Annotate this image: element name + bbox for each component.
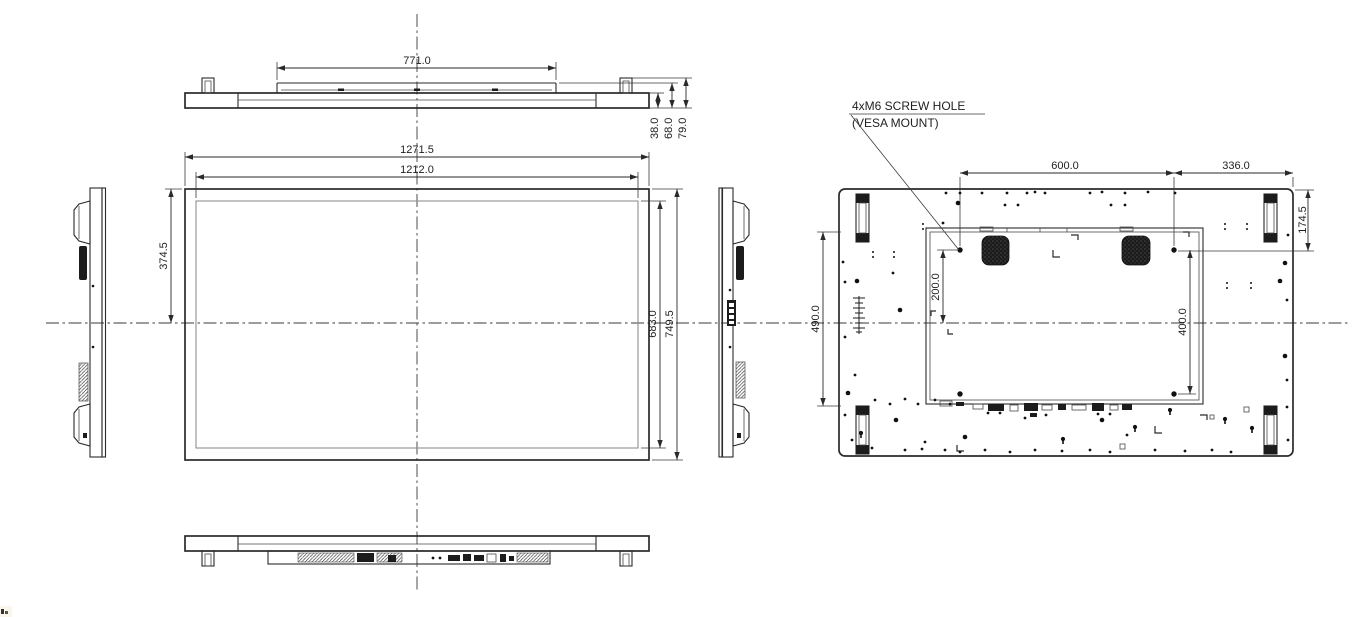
right-side-connectors	[727, 300, 736, 326]
right-side-control-panel	[736, 246, 744, 280]
back-handle-top-left	[856, 194, 869, 242]
back-handle-bottom-right	[1264, 406, 1277, 454]
terminal-rack	[853, 296, 865, 334]
back-handle-top-right	[1264, 194, 1277, 242]
keyhole-slots	[859, 408, 1254, 444]
mount-plate-clip	[338, 89, 344, 92]
left-side-control-panel	[79, 246, 87, 280]
left-side-latch	[83, 433, 87, 438]
right-side-latch	[737, 433, 741, 438]
dim-label-vesa-edge: 336.0	[1222, 160, 1250, 172]
right-side-view	[719, 188, 749, 457]
back-connector-row	[940, 401, 1132, 417]
dim-label-overall-width: 1271.5	[400, 144, 434, 156]
vesa-note-line1: 4xM6 SCREW HOLE	[852, 99, 965, 113]
speaker-right	[1122, 236, 1150, 265]
dim-label-vesa-x: 600.0	[1051, 160, 1079, 172]
screw-hole-dots	[842, 191, 1290, 454]
dim-label-top-to-center: 374.5	[158, 242, 170, 270]
speaker-left	[982, 236, 1009, 265]
option-slot	[1244, 407, 1249, 412]
dim-label-display-height: 683.0	[647, 310, 659, 338]
dim-label-vesa-y: 400.0	[1177, 308, 1189, 336]
technical-drawing-page: 771.0 38.0 68.0 79.0 1271.5 1212.0 374.5…	[0, 0, 1370, 617]
mount-plate-clip	[492, 89, 498, 92]
front-view: 1271.5 1212.0 374.5 683.0 749.5	[158, 144, 683, 460]
vesa-note-line2: (VESA MOUNT)	[852, 116, 939, 130]
dim-label-handle-spacing: 490.0	[810, 305, 822, 333]
dim-label-mid-depth: 68.0	[663, 118, 675, 139]
vent-strip	[298, 553, 354, 562]
left-side-handle-top	[74, 201, 90, 244]
top-view: 771.0 38.0 68.0 79.0	[185, 55, 692, 139]
vesa-screw-hole-bottom-right	[1171, 391, 1176, 396]
right-side-handle-top	[733, 201, 749, 244]
option-slot	[1120, 444, 1125, 449]
vesa-recess-inner	[930, 232, 1199, 400]
bracket-outer	[620, 551, 632, 566]
vesa-screw-hole-bottom-left	[957, 391, 962, 396]
vesa-screw-hole-top-left	[957, 247, 962, 252]
mount-plate-clip	[414, 89, 420, 92]
centerlines	[46, 14, 1348, 592]
dim-label-display-width: 1212.0	[400, 164, 434, 176]
option-slot	[1210, 415, 1214, 419]
wall-bracket-top-left	[202, 78, 214, 93]
wall-bracket-bottom-right	[620, 551, 632, 566]
leader-line	[851, 115, 959, 250]
left-side-handle-bottom	[74, 404, 90, 446]
wall-bracket-top-right	[620, 78, 632, 93]
left-side-view	[74, 188, 106, 457]
vesa-screw-hole-top-right	[1171, 247, 1176, 252]
bracket-notch	[623, 554, 629, 566]
left-side-glass	[102, 188, 106, 457]
switch-block	[388, 555, 396, 562]
bracket-outer	[620, 78, 632, 93]
wall-bracket-bottom-left	[202, 551, 214, 566]
right-side-vents	[736, 362, 745, 398]
dim-label-vesa-to-center: 200.0	[930, 273, 942, 301]
dim-label-mount-plate-width: 771.0	[403, 55, 431, 67]
bracket-outer	[202, 78, 214, 93]
orientation-marks	[931, 232, 1207, 451]
bracket-outer	[202, 551, 214, 566]
right-side-handle-bottom	[733, 404, 749, 446]
back-view: 4xM6 SCREW HOLE (VESA MOUNT) 600.0 336.0…	[810, 99, 1314, 456]
bracket-notch	[205, 554, 211, 566]
left-side-vents	[79, 363, 88, 401]
bottom-connector-row	[448, 554, 514, 562]
back-handle-bottom-left	[856, 406, 869, 454]
dim-label-overall-height: 749.5	[664, 310, 676, 338]
corner-artifact	[0, 606, 12, 617]
dim-label-top-to-vesa: 174.5	[1297, 206, 1309, 234]
power-inlet	[357, 553, 374, 562]
vent-strip	[517, 553, 548, 562]
technical-drawing: 771.0 38.0 68.0 79.0 1271.5 1212.0 374.5…	[0, 0, 1370, 617]
bracket-notch	[205, 81, 211, 93]
vesa-recess-outer	[926, 228, 1203, 404]
left-side-body	[90, 188, 102, 457]
dim-label-panel-depth: 38.0	[649, 118, 661, 139]
dim-label-total-depth: 79.0	[677, 118, 689, 139]
